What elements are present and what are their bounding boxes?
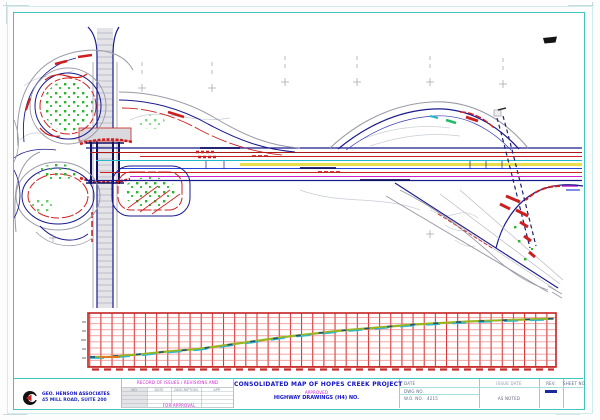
sheet-label: SHEET NO.	[563, 381, 585, 386]
dwg-no-label: DWG NO.	[404, 389, 424, 394]
east-flyover	[330, 102, 528, 150]
sw-loop-ramp	[14, 149, 100, 245]
rev-col-header-app: APP.	[201, 388, 233, 392]
wo-no-value: 4215	[427, 396, 438, 401]
title-block: GEO. HENSON ASSOCIATES 45 MILL ROAD, SUI…	[14, 378, 583, 408]
revision-header: RECORD OF ISSUES / REVISIONS AND	[122, 380, 233, 385]
crossing-road	[88, 27, 119, 308]
tb-hline-fields	[399, 394, 479, 395]
plan-drawing	[0, 0, 600, 420]
rev-col-header-no: NO.	[122, 388, 147, 392]
wo-no-label: W.O. NO.	[404, 396, 423, 401]
company-name-line1: GEO. HENSON ASSOCIATES	[42, 392, 110, 398]
rev-label: REV.	[539, 381, 563, 386]
north-arrow-icon	[543, 37, 557, 44]
scale-value: AS NOTED	[479, 396, 539, 401]
drawing-sheet: GEO. HENSON ASSOCIATES 45 MILL ROAD, SUI…	[0, 0, 600, 420]
drawing-title: CONSOLIDATED MAP OF HOPES CREEK PROJECT	[234, 381, 399, 388]
rev-col-header-desc: DESCRIPTION	[171, 388, 201, 392]
company-name: GEO. HENSON ASSOCIATES 45 MILL ROAD, SUI…	[42, 392, 110, 403]
tb-hline-right	[399, 387, 583, 388]
profile-chart	[81, 313, 556, 370]
southeast-ramp-wedge	[386, 183, 583, 298]
drawing-subtitle: HIGHWAY DRAWINGS (H4) NO.	[234, 395, 399, 401]
rev-row-3	[122, 399, 233, 400]
scale-header: ISSUE DATE	[479, 381, 539, 386]
rev-value-mark	[545, 390, 557, 393]
rev-row-2	[122, 395, 233, 396]
date-label: DATE	[404, 381, 415, 386]
profile-axis-labels	[81, 322, 86, 358]
revision-footer: FOR APPROVAL	[154, 403, 204, 408]
company-logo	[22, 390, 38, 406]
company-name-line2: 45 MILL ROAD, SUITE 200	[42, 398, 110, 404]
rev-col-header-date: DATE	[147, 388, 171, 392]
se-loop-ramp	[112, 166, 190, 216]
